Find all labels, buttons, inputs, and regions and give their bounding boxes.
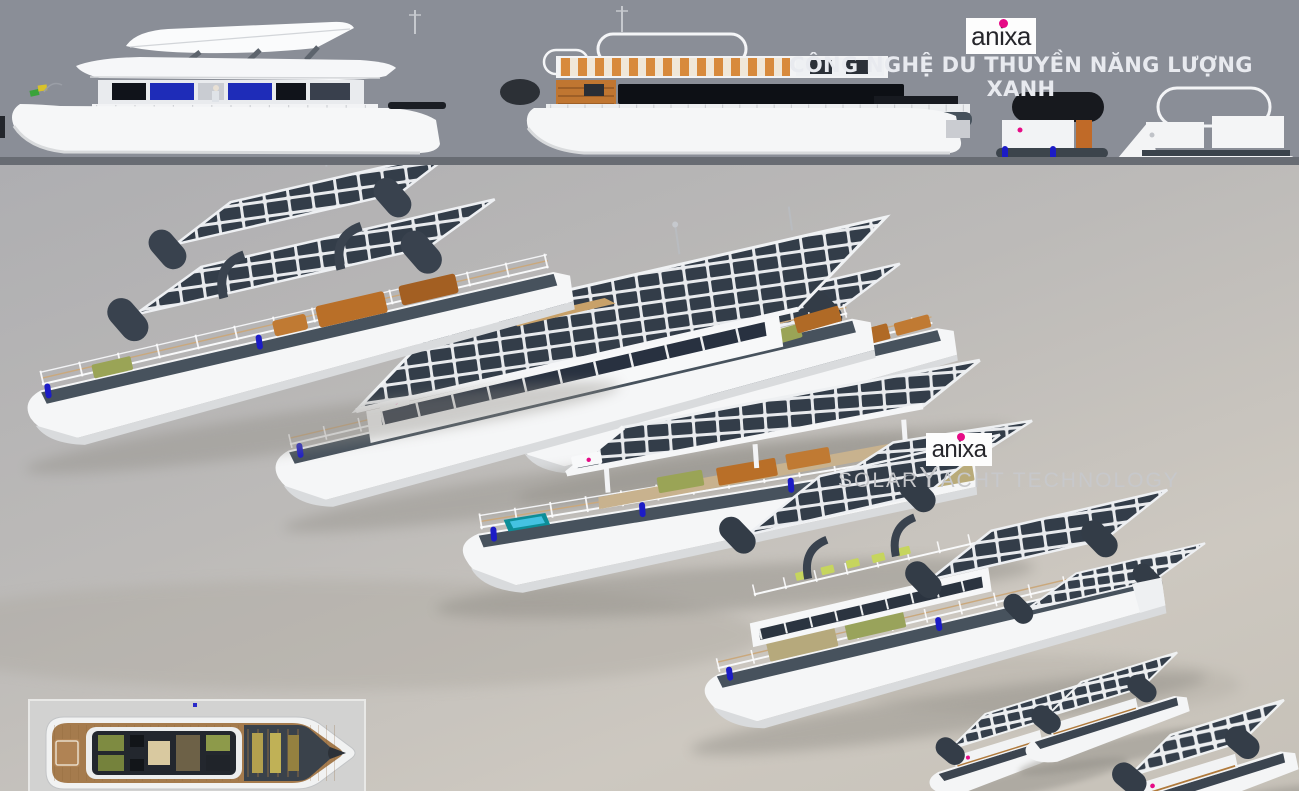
logo-pink-dot xyxy=(957,433,965,441)
top-banner: anixa CÔNG NGHỆ DU THUYỀN NĂNG LƯỢNG XAN… xyxy=(0,0,1299,165)
anixa-logo-text: anixa xyxy=(932,438,987,462)
main-render-scene: anixa SOLARYACHT TECHNOLOGY xyxy=(0,165,1299,791)
tagline-cap: Y xyxy=(919,462,940,494)
sideview-boat-3 xyxy=(990,92,1158,165)
tagline-pre: SOLAR xyxy=(838,469,919,492)
logo-pink-dot xyxy=(999,19,1008,28)
solar-yacht-poster: anixa CÔNG NGHỆ DU THUYỀN NĂNG LƯỢNG XAN… xyxy=(0,0,1299,791)
deck-plan-upper xyxy=(30,701,364,791)
deck-plan-upper-card xyxy=(28,699,366,791)
anixa-logo-top: anixa xyxy=(966,18,1036,54)
sideview-yacht-1 xyxy=(12,10,446,153)
tagline: SOLARYACHT TECHNOLOGY xyxy=(838,462,1158,494)
banner-caption: CÔNG NGHỆ DU THUYỀN NĂNG LƯỢNG XANH xyxy=(788,53,1254,101)
tagline-post: ACHT TECHNOLOGY xyxy=(941,469,1180,492)
